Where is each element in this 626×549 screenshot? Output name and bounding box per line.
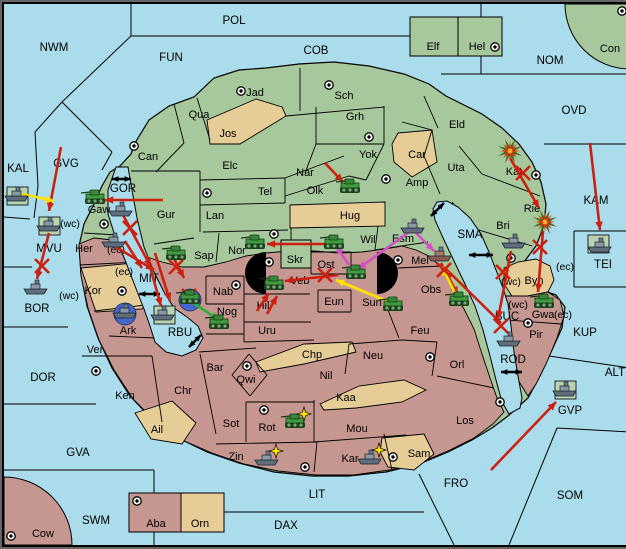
region-label-her: Her <box>75 243 93 255</box>
army-wheel <box>385 306 388 309</box>
fleet-deck <box>44 221 53 226</box>
fleet-unit[interactable] <box>102 242 125 247</box>
region-label-eld: Eld <box>449 119 465 131</box>
supply-center-core <box>9 534 12 537</box>
region-label-olk: Olk <box>307 185 324 197</box>
supply-center-core <box>303 465 306 468</box>
army-wheel <box>342 188 345 191</box>
sea-label-kal: KAL <box>7 163 29 175</box>
fleet-stack <box>412 219 416 223</box>
region-label-yok: Yok <box>359 149 377 161</box>
supply-center-core <box>239 89 242 92</box>
army-wheel <box>348 274 351 277</box>
fleet-unit[interactable] <box>358 459 381 464</box>
supply-center-core <box>272 232 275 235</box>
explosion-core <box>543 220 548 225</box>
region-label-orn: Orn <box>191 518 209 530</box>
army-wheel <box>211 324 214 327</box>
sea-label-tei: TEI <box>594 259 612 271</box>
supply-center-core <box>205 191 208 194</box>
region-label-elc: Elc <box>222 160 238 172</box>
army-wheel <box>217 324 220 327</box>
army-turret <box>351 265 360 270</box>
army-turret <box>250 235 259 240</box>
army-wheel <box>93 199 96 202</box>
region-label-can: Can <box>138 151 158 163</box>
army-wheel <box>326 244 329 247</box>
fleet-unit[interactable] <box>502 243 525 248</box>
game-map-frame: POLNWMCOBFUNNOMOVDGVGKALGORKAMMVUSMAMITT… <box>4 4 626 545</box>
army-wheel <box>548 303 551 306</box>
army-wheel <box>299 423 302 426</box>
sea-label-gor: GOR <box>110 183 136 195</box>
army-wheel <box>338 244 341 247</box>
explosion-core <box>508 149 513 154</box>
fleet-unit[interactable] <box>255 460 278 465</box>
fleet-unit[interactable] <box>113 313 136 318</box>
region-label-gur: Gur <box>157 209 176 221</box>
army-wheel <box>360 274 363 277</box>
sea-label-gva: GVA <box>66 447 90 459</box>
army-wheel <box>457 301 460 304</box>
region-label-sch: Sch <box>335 90 354 102</box>
army-wheel <box>266 285 269 288</box>
fleet-stack <box>508 332 512 336</box>
sea-label-som: SOM <box>557 490 583 502</box>
army-wheel <box>99 199 102 202</box>
army-wheel <box>253 244 256 247</box>
fleet-deck <box>365 454 374 459</box>
army-turret <box>214 315 223 320</box>
region-label-neu: Neu <box>363 350 383 362</box>
supply-center-core <box>120 289 123 292</box>
fleet-unit[interactable] <box>5 196 28 201</box>
region-label-feu: Feu <box>411 325 430 337</box>
region-label-aba: Aba <box>146 518 166 530</box>
supply-center-core <box>428 355 431 358</box>
supply-center-core <box>493 45 496 48</box>
elf-hel-island-box[interactable] <box>410 17 502 56</box>
sea-label-ovd: OVD <box>562 105 587 117</box>
region-label-uta: Uta <box>447 162 465 174</box>
army-turret <box>171 246 180 251</box>
supply-center-core <box>132 144 135 147</box>
supply-center-core <box>534 173 537 176</box>
army-wheel <box>247 244 250 247</box>
region-label-pir: Pir <box>529 329 543 341</box>
army-turret <box>329 235 338 240</box>
sea-label-fro: FRO <box>444 478 468 490</box>
region-label-hug: Hug <box>340 210 360 222</box>
fleet-unit[interactable] <box>37 226 60 231</box>
army-wheel <box>348 188 351 191</box>
fleet-stack <box>369 450 373 454</box>
sea-label-mvu: MVU <box>36 243 62 255</box>
army-turret <box>345 179 354 184</box>
fleet-unit[interactable] <box>24 289 47 294</box>
coast-annotation: (wc) <box>508 299 528 311</box>
army-turret <box>90 190 99 195</box>
sea-label-pol: POL <box>222 15 246 27</box>
army-wheel <box>397 306 400 309</box>
sea-label-dor: DOR <box>30 372 56 384</box>
supply-center-core <box>135 499 138 502</box>
fleet-stack <box>48 217 52 221</box>
sea-label-kup: KUP <box>573 327 597 339</box>
sea-label-lit: LIT <box>309 489 326 501</box>
fleet-stack <box>113 233 117 237</box>
region-label-jad: Jad <box>246 87 264 99</box>
supply-center-core <box>396 258 399 261</box>
fleet-deck <box>109 237 118 242</box>
army-wheel <box>463 301 466 304</box>
fleet-stack <box>124 304 128 308</box>
fleet-deck <box>262 455 271 460</box>
region-label-tel: Tel <box>258 186 272 198</box>
region-label-eun: Eun <box>324 296 344 308</box>
region-label-gaw: Gaw <box>88 204 111 216</box>
fleet-deck <box>12 191 21 196</box>
game-map[interactable]: POLNWMCOBFUNNOMOVDGVGKALGORKAMMVUSMAMITT… <box>4 4 626 545</box>
army-turret <box>185 290 194 295</box>
fleet-unit[interactable] <box>553 391 576 396</box>
army-wheel <box>174 255 177 258</box>
fleet-deck <box>408 223 417 228</box>
region-label-bar: Bar <box>206 362 223 374</box>
region-label-sap: Sap <box>194 250 214 262</box>
fleet-unit[interactable] <box>588 247 611 252</box>
region-label-sot: Sot <box>223 418 240 430</box>
fleet-unit[interactable] <box>497 341 520 346</box>
region-label-car: Car <box>408 149 426 161</box>
army-turret <box>388 297 397 302</box>
army-wheel <box>87 199 90 202</box>
sea-label-bor: BOR <box>25 303 50 315</box>
fleet-deck <box>595 242 604 247</box>
army-turret <box>269 276 278 281</box>
region-label-sam: Sam <box>408 448 431 460</box>
region-label-mel: Mel <box>411 255 429 267</box>
sea-label-nwm: NWM <box>40 42 69 54</box>
sea-label-dax: DAX <box>274 520 298 532</box>
fleet-stack <box>513 234 517 238</box>
fleet-deck <box>120 308 129 313</box>
supply-center-core <box>267 260 270 263</box>
fleet-deck <box>560 386 569 391</box>
fleet-stack <box>564 382 568 386</box>
region-label-gwa: Gwa <box>532 309 556 321</box>
supply-center-core <box>391 455 394 458</box>
sea-label-rod: ROD <box>500 354 526 366</box>
fleet-deck <box>435 251 444 256</box>
region-label-nil: Nil <box>320 370 333 382</box>
army-wheel <box>354 274 357 277</box>
region-label-zin: Zin <box>228 451 243 463</box>
region-label-ail: Ail <box>151 424 163 436</box>
region-label-kor: Kor <box>84 285 101 297</box>
army-wheel <box>287 423 290 426</box>
region-label-chr: Chr <box>174 385 192 397</box>
army-wheel <box>332 244 335 247</box>
region-label-uru: Uru <box>258 325 276 337</box>
region-label-mou: Mou <box>346 423 367 435</box>
supply-center-core <box>620 9 623 12</box>
sea-label-rbu: RBU <box>168 327 192 339</box>
army-wheel <box>272 285 275 288</box>
supply-center-core <box>102 222 105 225</box>
region-label-los: Los <box>456 415 474 427</box>
region-label-cow: Cow <box>32 528 54 540</box>
coast-annotation: (wc) <box>59 290 79 302</box>
region-label-wil: Wil <box>360 234 375 246</box>
fleet-stack <box>162 306 166 310</box>
supply-center-core <box>327 83 330 86</box>
fleet-stack <box>16 187 20 191</box>
supply-center-core <box>262 408 265 411</box>
fleet-unit[interactable] <box>109 211 132 216</box>
fleet-stack <box>599 238 603 242</box>
fleet-stack <box>120 202 124 206</box>
region-label-rot: Rot <box>258 422 275 434</box>
sea-label-gvp: GVP <box>558 405 583 417</box>
coast-annotation: (ec) <box>556 261 574 273</box>
army-wheel <box>194 299 197 302</box>
region-label-lan: Lan <box>206 210 224 222</box>
supply-center-core <box>94 369 97 372</box>
coast-annotation: (wc) <box>60 218 80 230</box>
army-wheel <box>180 255 183 258</box>
region-label-ark: Ark <box>120 325 137 337</box>
sea-label-nom: NOM <box>537 55 564 67</box>
army-wheel <box>188 299 191 302</box>
sea-label-sma: SMA <box>458 229 483 241</box>
sea-label-alt: ALT <box>605 367 625 379</box>
fleet-stack <box>35 280 39 284</box>
sea-label-cob: COB <box>304 45 329 57</box>
sea-label-fun: FUN <box>159 52 183 64</box>
region-label-obs: Obs <box>421 284 442 296</box>
region-label-bri: Bri <box>496 220 509 232</box>
fleet-unit[interactable] <box>428 256 451 261</box>
region-label-grh: Grh <box>346 111 364 123</box>
fleet-deck <box>31 284 40 289</box>
coast-annotation: (ec) <box>554 309 572 321</box>
army-wheel <box>451 301 454 304</box>
sea-label-swm: SWM <box>82 515 110 527</box>
army-wheel <box>223 324 226 327</box>
fleet-unit[interactable] <box>151 315 174 320</box>
region-label-hel: Hel <box>469 41 486 53</box>
army-turret <box>454 292 463 297</box>
supply-center-core <box>367 135 370 138</box>
fleet-stack <box>439 247 443 251</box>
army-wheel <box>354 188 357 191</box>
army-turret <box>290 414 299 419</box>
region-label-ver: Ver <box>87 344 104 356</box>
region-label-jos: Jos <box>219 128 237 140</box>
region-label-nar: Nar <box>296 167 314 179</box>
army-turret <box>539 294 548 299</box>
region-label-amp: Amp <box>406 177 429 189</box>
army-wheel <box>542 303 545 306</box>
fleet-deck <box>509 238 518 243</box>
fleet-deck <box>158 310 167 315</box>
region-label-ken: Ken <box>115 390 135 402</box>
army-wheel <box>278 285 281 288</box>
coast-annotation: (ec) <box>115 266 133 278</box>
supply-center-core <box>526 321 529 324</box>
region-label-qua: Qua <box>189 109 211 121</box>
region-label-nor: Nor <box>228 245 246 257</box>
fleet-deck <box>116 206 125 211</box>
region-label-skr: Skr <box>287 254 304 266</box>
army-wheel <box>293 423 296 426</box>
fleet-deck <box>504 336 513 341</box>
supply-center-core <box>234 283 237 286</box>
tan-region[interactable] <box>290 202 385 228</box>
army-wheel <box>536 303 539 306</box>
region-label-elf: Elf <box>427 41 441 53</box>
supply-center-core <box>498 400 501 403</box>
region-label-kar: Kar <box>341 453 358 465</box>
army-wheel <box>391 306 394 309</box>
army-wheel <box>259 244 262 247</box>
region-label-nab: Nab <box>213 286 233 298</box>
region-label-qwi: Qwi <box>237 374 256 386</box>
region-label-orl: Orl <box>450 359 465 371</box>
army-wheel <box>182 299 185 302</box>
fleet-stack <box>266 451 270 455</box>
fleet-unit[interactable] <box>401 228 424 233</box>
region-label-con: Con <box>600 43 620 55</box>
supply-center-core <box>384 177 387 180</box>
army-wheel <box>168 255 171 258</box>
region-label-kaa: Kaa <box>336 392 356 404</box>
supply-center-core <box>245 364 248 367</box>
region-label-chp: Chp <box>302 349 322 361</box>
